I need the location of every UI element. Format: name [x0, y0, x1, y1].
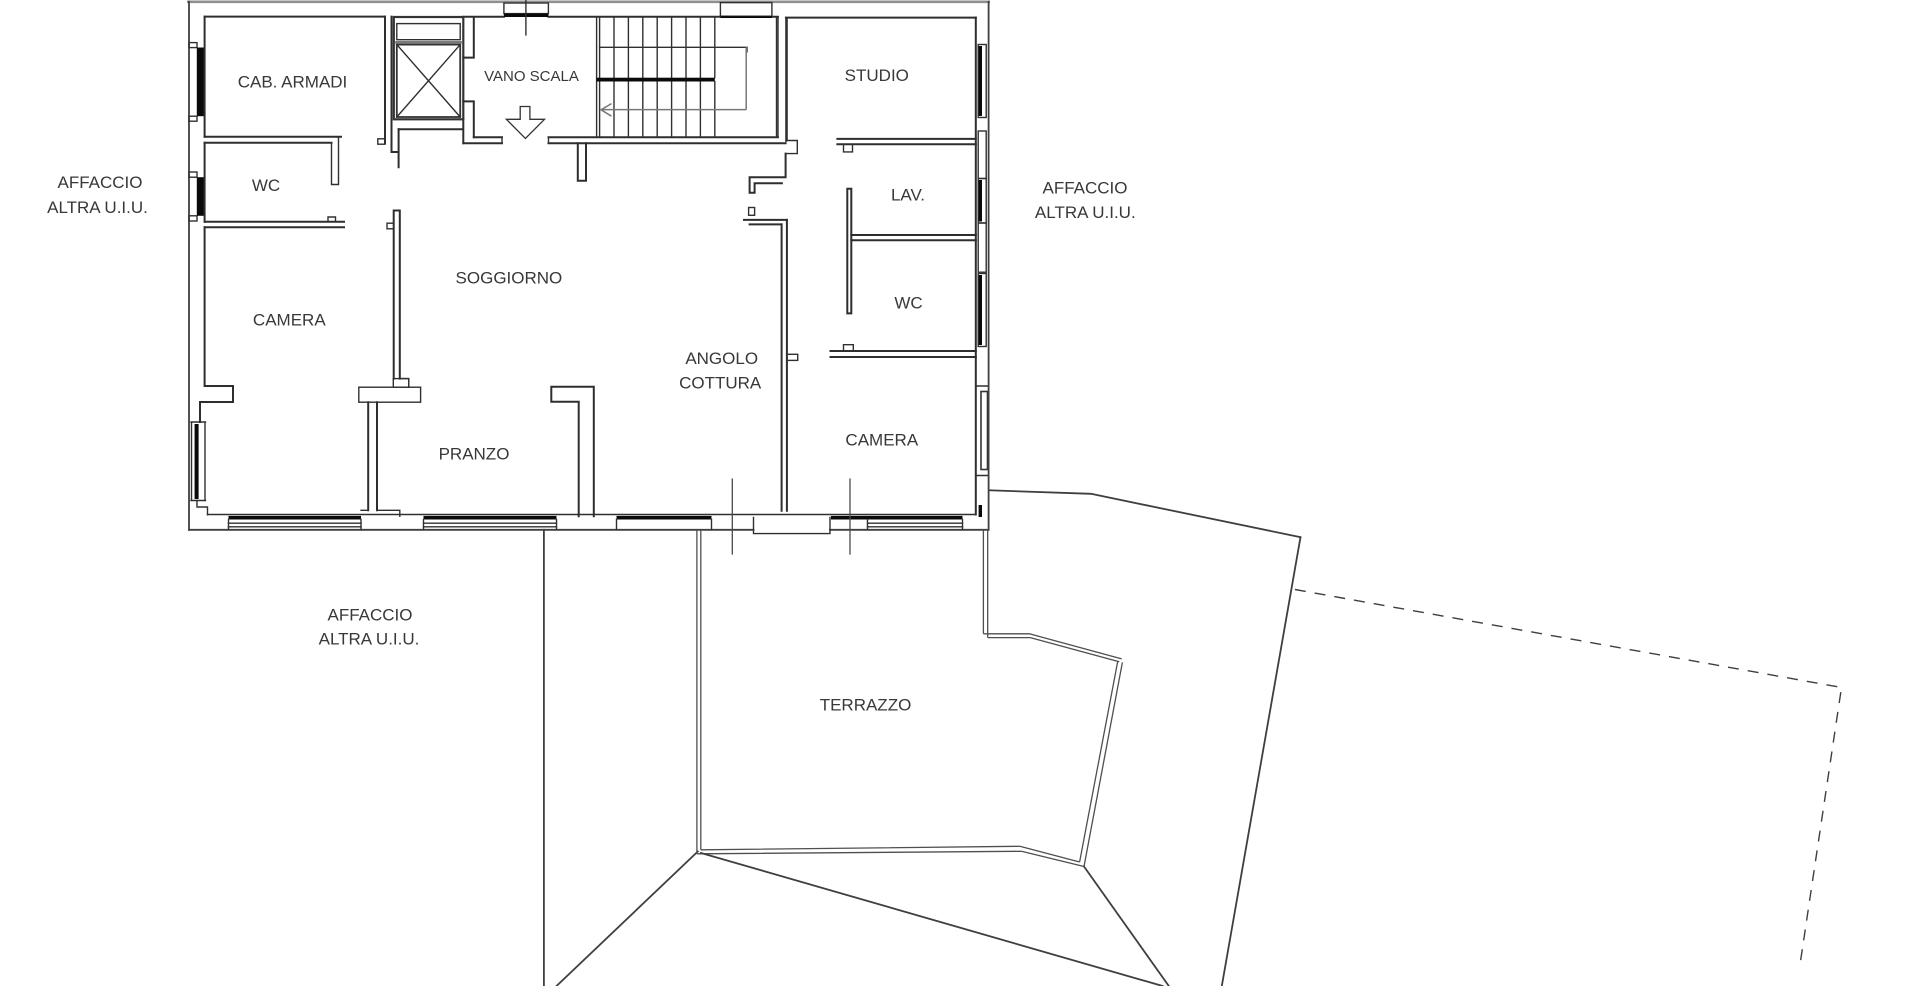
svg-text:CAMERA: CAMERA [253, 311, 326, 330]
svg-text:STUDIO: STUDIO [845, 66, 909, 85]
svg-text:CAMERA: CAMERA [845, 431, 918, 450]
svg-text:AFFACCIO: AFFACCIO [327, 606, 412, 625]
svg-text:WC: WC [894, 294, 922, 313]
svg-text:AFFACCIO: AFFACCIO [57, 173, 142, 192]
svg-text:SOGGIORNO: SOGGIORNO [456, 269, 563, 288]
svg-text:CAB. ARMADI: CAB. ARMADI [238, 73, 348, 92]
svg-text:TERRAZZO: TERRAZZO [820, 696, 912, 715]
svg-text:WC: WC [252, 176, 280, 195]
svg-text:ALTRA U.I.U.: ALTRA U.I.U. [47, 198, 148, 217]
svg-text:LAV.: LAV. [891, 186, 925, 205]
svg-text:ALTRA U.I.U.: ALTRA U.I.U. [1035, 203, 1136, 222]
svg-text:ALTRA U.I.U.: ALTRA U.I.U. [319, 630, 420, 649]
svg-text:ANGOLO: ANGOLO [685, 349, 758, 368]
svg-text:AFFACCIO: AFFACCIO [1042, 178, 1127, 197]
svg-text:VANO SCALA: VANO SCALA [484, 68, 579, 85]
svg-text:PRANZO: PRANZO [439, 445, 510, 464]
svg-text:COTTURA: COTTURA [679, 373, 762, 392]
